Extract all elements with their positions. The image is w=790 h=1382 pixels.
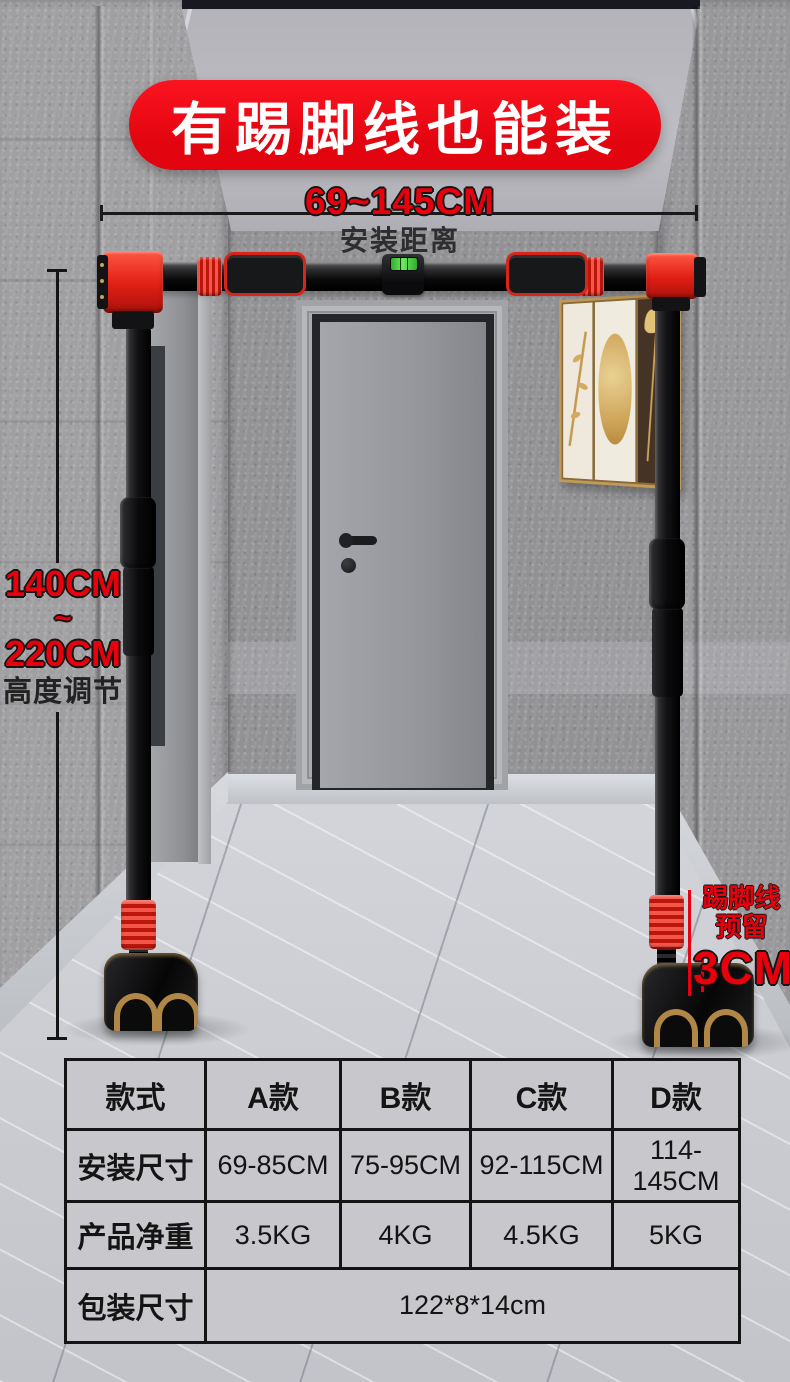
cell-weight-c: 4.5KG bbox=[471, 1202, 613, 1269]
height-min: 140CM bbox=[0, 566, 126, 602]
adjust-collar-left bbox=[197, 257, 222, 296]
width-measure-tick-right bbox=[695, 205, 698, 221]
width-range-label: 安装距离 bbox=[245, 219, 555, 259]
cell-weight-a: 3.5KG bbox=[206, 1202, 341, 1269]
art-panel-circle bbox=[595, 300, 635, 482]
skirting-note: 预留 bbox=[693, 913, 790, 942]
col-header-a: A款 bbox=[206, 1060, 341, 1130]
foot-collar-right bbox=[649, 895, 684, 949]
row-label-install-size: 安装尺寸 bbox=[66, 1130, 206, 1202]
ceiling-recess bbox=[182, 0, 700, 9]
height-measure-cap-bottom bbox=[47, 1037, 67, 1040]
height-max: 220CM bbox=[0, 636, 126, 672]
height-measure-line-top bbox=[56, 271, 59, 563]
width-measure-tick-left bbox=[100, 205, 103, 221]
skirting-measure-line bbox=[688, 890, 691, 996]
spec-table: 款式 A款 B款 C款 D款 安装尺寸 69-85CM 75-95CM 92-1… bbox=[64, 1058, 741, 1344]
product-poster: 有踢脚线也能装 69~145CM 安装距离 140CM ~ 220CM 高度调节… bbox=[0, 0, 790, 1382]
corner-cap-right bbox=[652, 297, 690, 311]
gold-leaf bbox=[570, 410, 581, 419]
level-mark bbox=[400, 258, 401, 270]
height-separator: ~ bbox=[0, 604, 126, 634]
pole-coupling-left bbox=[120, 497, 156, 569]
corner-connector-right bbox=[646, 253, 698, 299]
headline-banner: 有踢脚线也能装 bbox=[129, 80, 661, 170]
wheel-arch bbox=[156, 993, 198, 1031]
headline-text: 有踢脚线也能装 bbox=[171, 84, 619, 166]
art-panel-branch bbox=[563, 303, 592, 480]
width-range-value: 69~145CM bbox=[245, 181, 555, 223]
height-range-block: 140CM ~ 220CM 高度调节 bbox=[0, 566, 126, 707]
screw bbox=[100, 295, 104, 299]
wheel-arch bbox=[704, 1009, 748, 1047]
skirting-note-block: 踢脚线 预留 3CM bbox=[693, 884, 790, 994]
wheel-arch bbox=[114, 993, 158, 1031]
pole-coupling-right bbox=[649, 538, 685, 610]
table-row: 安装尺寸 69-85CM 75-95CM 92-115CM 114-145CM bbox=[66, 1130, 740, 1202]
col-header-d: D款 bbox=[613, 1060, 740, 1130]
door-lock-knob bbox=[341, 558, 356, 573]
cell-weight-d: 5KG bbox=[613, 1202, 740, 1269]
col-header-style: 款式 bbox=[66, 1060, 206, 1130]
door-panel bbox=[320, 322, 486, 788]
gold-leaf bbox=[578, 382, 589, 392]
table-row: 产品净重 3.5KG 4KG 4.5KG 5KG bbox=[66, 1202, 740, 1269]
cell-install-b: 75-95CM bbox=[341, 1130, 471, 1202]
corner-plate-left bbox=[97, 255, 108, 309]
side-door bbox=[146, 290, 202, 862]
skirting-value: 3CM bbox=[693, 943, 790, 994]
level-mark bbox=[407, 258, 408, 270]
height-measure-line-bottom bbox=[56, 712, 59, 1039]
pole-sleeve-right bbox=[652, 607, 683, 697]
door-handle bbox=[341, 536, 377, 545]
row-label-package-size: 包装尺寸 bbox=[66, 1269, 206, 1343]
corner-plate-right bbox=[694, 257, 706, 297]
col-header-b: B款 bbox=[341, 1060, 471, 1130]
gold-circle bbox=[598, 333, 632, 446]
table-row: 包装尺寸 122*8*14cm bbox=[66, 1269, 740, 1343]
row-label-net-weight: 产品净重 bbox=[66, 1202, 206, 1269]
pole-sleeve-left bbox=[123, 566, 154, 656]
cell-weight-b: 4KG bbox=[341, 1202, 471, 1269]
corner-cap-left bbox=[112, 311, 154, 329]
table-row: 款式 A款 B款 C款 D款 bbox=[66, 1060, 740, 1130]
bubble-level bbox=[382, 254, 424, 295]
wheel-base-left bbox=[104, 953, 198, 1031]
col-header-c: C款 bbox=[471, 1060, 613, 1130]
corner-connector-left bbox=[103, 251, 163, 313]
cell-install-a: 69-85CM bbox=[206, 1130, 341, 1202]
cell-install-c: 92-115CM bbox=[471, 1130, 613, 1202]
screw bbox=[100, 279, 104, 283]
cell-package-size: 122*8*14cm bbox=[206, 1269, 740, 1343]
skirting-name: 踢脚线 bbox=[693, 884, 790, 913]
level-vial bbox=[390, 257, 418, 271]
height-label: 高度调节 bbox=[0, 678, 126, 707]
screw bbox=[100, 263, 104, 267]
wheel-arch bbox=[654, 1009, 698, 1047]
side-door-casing bbox=[198, 288, 211, 864]
cell-install-d: 114-145CM bbox=[613, 1130, 740, 1202]
foot-collar-left bbox=[121, 900, 156, 950]
